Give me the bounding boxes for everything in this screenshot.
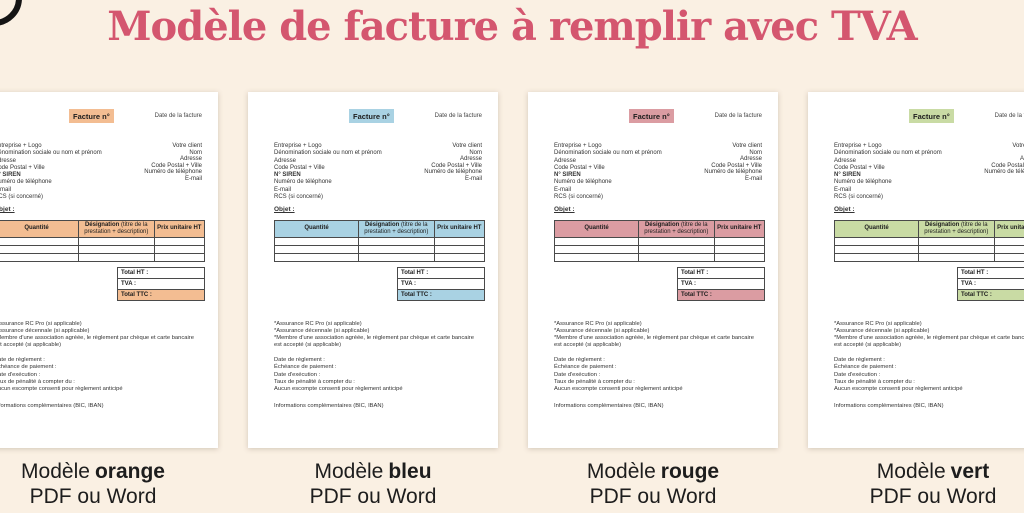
total-ttc-row: Total TTC : (117, 289, 205, 301)
totals-block: Total HT : TVA : Total TTC : (397, 268, 485, 301)
footnote-line: *Assurance décennale (si applicable) (834, 328, 1024, 335)
items-table-header-designation: Désignation (titre de la prestation + de… (79, 221, 155, 238)
complementary-info-line: Informations complémentaires (BIC, IBAN) (0, 403, 104, 409)
table-cell-empty (639, 237, 715, 245)
invoice-template-card[interactable]: Facture n° Date de la facture Entreprise… (248, 92, 498, 448)
sender-line: N° SIREN (834, 172, 942, 179)
model-caption-prefix: Modèle (877, 459, 946, 484)
items-table-empty-row (0, 237, 205, 245)
table-cell-empty (639, 245, 715, 253)
object-label: Objet : (274, 206, 295, 213)
payment-terms-block: Date de règlement : Échéance de paiement… (554, 357, 754, 393)
table-cell-empty (835, 253, 919, 261)
table-cell-empty (154, 245, 204, 253)
model-caption[interactable]: Modèle orange PDF ou Word (0, 459, 218, 509)
footnotes-block: *Assurance RC Pro (si applicable) *Assur… (274, 321, 474, 349)
invoice-date-label: Date de la facture (155, 113, 202, 119)
table-cell-empty (275, 237, 359, 245)
items-table-empty-row (555, 245, 765, 253)
sender-line: Code Postal + Ville (554, 165, 662, 172)
sender-line: Dénomination sociale ou nom et prénom (834, 150, 942, 157)
payment-line: Date d'exécution : (554, 372, 754, 379)
footnote-line: *Membre d'une association agréée, le règ… (274, 335, 474, 349)
invoice-date-label: Date de la facture (435, 113, 482, 119)
totals-block: Total HT : TVA : Total TTC : (677, 268, 765, 301)
model-caption-prefix: Modèle (21, 459, 90, 484)
items-table: Quantité Désignation (titre de la presta… (274, 220, 485, 262)
table-cell-empty (994, 237, 1024, 245)
payment-line: Échéance de paiement : (834, 364, 1024, 371)
items-table-header-designation: Désignation (titre de la prestation + de… (359, 221, 435, 238)
model-caption[interactable]: Modèle rouge PDF ou Word (528, 459, 778, 509)
page-title: Modèle de facture à remplir avec TVA (0, 2, 1024, 52)
footnote-line: *Assurance RC Pro (si applicable) (0, 321, 194, 328)
footnote-line: *Assurance RC Pro (si applicable) (554, 321, 754, 328)
payment-line: Aucun escompte consenti pour règlement a… (554, 386, 754, 393)
payment-line: Aucun escompte consenti pour règlement a… (0, 386, 194, 393)
sender-line: E-mail (554, 187, 662, 194)
invoice-number-badge: Facture n° (629, 109, 674, 123)
complementary-info-line: Informations complémentaires (BIC, IBAN) (554, 403, 664, 409)
model-caption-format: PDF ou Word (808, 484, 1024, 509)
table-cell-empty (919, 245, 995, 253)
table-cell-empty (714, 253, 764, 261)
table-cell-empty (434, 245, 484, 253)
table-cell-empty (359, 237, 435, 245)
totals-block: Total HT : TVA : Total TTC : (957, 268, 1024, 301)
sender-line: Adresse (0, 158, 102, 165)
items-table-empty-row (0, 253, 205, 261)
sender-line: N° SIREN (554, 172, 662, 179)
items-table-header-unit-price: Prix unitaire HT (434, 221, 484, 238)
invoice-number-badge: Facture n° (69, 109, 114, 123)
sender-line: Adresse (274, 158, 382, 165)
invoice-template-card[interactable]: Facture n° Date de la facture Entreprise… (808, 92, 1024, 448)
sender-line: Code Postal + Ville (0, 165, 102, 172)
items-table-header-designation: Désignation (titre de la prestation + de… (639, 221, 715, 238)
payment-line: Taux de pénalité à compter du : (0, 379, 194, 386)
items-table-header-quantity: Quantité (835, 221, 919, 238)
sender-line: Numéro de téléphone (274, 179, 382, 186)
sender-line: E-mail (0, 187, 102, 194)
items-table-header-quantity: Quantité (0, 221, 79, 238)
table-cell-empty (154, 253, 204, 261)
client-line: Numéro de téléphone (424, 169, 482, 176)
total-ttc-row: Total TTC : (397, 289, 485, 301)
table-cell-empty (835, 245, 919, 253)
footnotes-block: *Assurance RC Pro (si applicable) *Assur… (834, 321, 1024, 349)
table-cell-empty (639, 253, 715, 261)
items-table-empty-row (555, 253, 765, 261)
payment-line: Taux de pénalité à compter du : (274, 379, 474, 386)
table-cell-empty (714, 237, 764, 245)
sender-block: Entreprise + Logo Dénomination sociale o… (0, 143, 102, 201)
payment-terms-block: Date de règlement : Échéance de paiement… (274, 357, 474, 393)
sender-line: Dénomination sociale ou nom et prénom (0, 150, 102, 157)
items-table: Quantité Désignation (titre de la presta… (554, 220, 765, 262)
sender-line: Adresse (834, 158, 942, 165)
client-line: E-mail (144, 176, 202, 183)
sender-line: Numéro de téléphone (554, 179, 662, 186)
sender-line: Adresse (554, 158, 662, 165)
items-table-header-quantity: Quantité (275, 221, 359, 238)
invoice-date-label: Date de la facture (995, 113, 1024, 119)
sender-line: Dénomination sociale ou nom et prénom (554, 150, 662, 157)
client-line: E-mail (984, 176, 1024, 183)
items-table-header-unit-price: Prix unitaire HT (994, 221, 1024, 238)
model-caption-name: Modèle bleu (248, 459, 498, 484)
items-table-empty-row (275, 237, 485, 245)
items-table-empty-row (835, 237, 1024, 245)
items-table-header-unit-price: Prix unitaire HT (714, 221, 764, 238)
items-table-empty-row (835, 245, 1024, 253)
sender-line: Entreprise + Logo (274, 143, 382, 150)
items-table: Quantité Désignation (titre de la presta… (834, 220, 1024, 262)
table-cell-empty (434, 253, 484, 261)
model-caption[interactable]: Modèle bleu PDF ou Word (248, 459, 498, 509)
table-cell-empty (359, 245, 435, 253)
total-ttc-row: Total TTC : (677, 289, 765, 301)
payment-terms-block: Date de règlement : Échéance de paiement… (0, 357, 194, 393)
invoice-template-card[interactable]: Facture n° Date de la facture Entreprise… (0, 92, 218, 448)
model-caption-format: PDF ou Word (248, 484, 498, 509)
model-caption-name: Modèle rouge (528, 459, 778, 484)
table-cell-empty (359, 253, 435, 261)
sender-line: RCS (si concerné) (0, 194, 102, 201)
client-line: Numéro de téléphone (704, 169, 762, 176)
sender-line: N° SIREN (0, 172, 102, 179)
footnote-line: *Membre d'une association agréée, le règ… (554, 335, 754, 349)
payment-line: Échéance de paiement : (0, 364, 194, 371)
table-cell-empty (555, 253, 639, 261)
table-cell-empty (835, 237, 919, 245)
items-table-empty-row (275, 253, 485, 261)
items-table-header-designation: Désignation (titre de la prestation + de… (919, 221, 995, 238)
client-line: E-mail (424, 176, 482, 183)
sender-line: Code Postal + Ville (834, 165, 942, 172)
totals-block: Total HT : TVA : Total TTC : (117, 268, 205, 301)
table-cell-empty (0, 253, 79, 261)
model-caption-color-word: orange (95, 459, 165, 484)
client-block: Votre client Nom Adresse Code Postal + V… (704, 143, 762, 182)
payment-line: Aucun escompte consenti pour règlement a… (834, 386, 1024, 393)
sender-line: RCS (si concerné) (834, 194, 942, 201)
payment-line: Taux de pénalité à compter du : (834, 379, 1024, 386)
payment-line: Taux de pénalité à compter du : (554, 379, 754, 386)
table-cell-empty (555, 237, 639, 245)
client-block: Votre client Nom Adresse Code Postal + V… (424, 143, 482, 182)
payment-line: Date d'exécution : (834, 372, 1024, 379)
sender-line: E-mail (274, 187, 382, 194)
total-ttc-row: Total TTC : (957, 289, 1024, 301)
table-cell-empty (919, 253, 995, 261)
model-caption-prefix: Modèle (314, 459, 383, 484)
invoice-number-badge: Facture n° (349, 109, 394, 123)
table-cell-empty (434, 237, 484, 245)
model-caption-color-word: vert (951, 459, 990, 484)
sender-line: RCS (si concerné) (554, 194, 662, 201)
table-cell-empty (994, 245, 1024, 253)
sender-block: Entreprise + Logo Dénomination sociale o… (834, 143, 942, 201)
table-cell-empty (0, 237, 79, 245)
table-cell-empty (275, 245, 359, 253)
model-caption[interactable]: Modèle vert PDF ou Word (808, 459, 1024, 509)
sender-line: N° SIREN (274, 172, 382, 179)
model-caption-prefix: Modèle (587, 459, 656, 484)
sender-line: Dénomination sociale ou nom et prénom (274, 150, 382, 157)
model-caption-format: PDF ou Word (0, 484, 218, 509)
complementary-info-line: Informations complémentaires (BIC, IBAN) (274, 403, 384, 409)
table-cell-empty (275, 253, 359, 261)
items-table-header-quantity: Quantité (555, 221, 639, 238)
payment-terms-block: Date de règlement : Échéance de paiement… (834, 357, 1024, 393)
items-table-header-unit-price: Prix unitaire HT (154, 221, 204, 238)
footnote-line: *Assurance décennale (si applicable) (0, 328, 194, 335)
items-table-empty-row (275, 245, 485, 253)
sender-line: Numéro de téléphone (834, 179, 942, 186)
footnote-line: *Assurance RC Pro (si applicable) (834, 321, 1024, 328)
sender-line: Entreprise + Logo (834, 143, 942, 150)
client-line: Numéro de téléphone (144, 169, 202, 176)
model-caption-format: PDF ou Word (528, 484, 778, 509)
table-cell-empty (154, 237, 204, 245)
payment-line: Date d'exécution : (0, 372, 194, 379)
object-label: Objet : (0, 206, 15, 213)
footnotes-block: *Assurance RC Pro (si applicable) *Assur… (554, 321, 754, 349)
sender-line: Entreprise + Logo (0, 143, 102, 150)
table-cell-empty (79, 245, 155, 253)
invoice-date-label: Date de la facture (715, 113, 762, 119)
payment-line: Échéance de paiement : (554, 364, 754, 371)
table-cell-empty (555, 245, 639, 253)
client-line: Numéro de téléphone (984, 169, 1024, 176)
model-caption-color-word: bleu (388, 459, 431, 484)
table-cell-empty (919, 237, 995, 245)
payment-line: Aucun escompte consenti pour règlement a… (274, 386, 474, 393)
sender-line: Code Postal + Ville (274, 165, 382, 172)
complementary-info-line: Informations complémentaires (BIC, IBAN) (834, 403, 944, 409)
model-caption-name: Modèle orange (0, 459, 218, 484)
sender-block: Entreprise + Logo Dénomination sociale o… (274, 143, 382, 201)
sender-line: Entreprise + Logo (554, 143, 662, 150)
sender-block: Entreprise + Logo Dénomination sociale o… (554, 143, 662, 201)
footnote-line: *Assurance RC Pro (si applicable) (274, 321, 474, 328)
footnote-line: *Membre d'une association agréée, le règ… (834, 335, 1024, 349)
footnotes-block: *Assurance RC Pro (si applicable) *Assur… (0, 321, 194, 349)
footnote-line: *Assurance décennale (si applicable) (274, 328, 474, 335)
items-table-empty-row (555, 237, 765, 245)
client-block: Votre client Nom Adresse Code Postal + V… (144, 143, 202, 182)
client-line: E-mail (704, 176, 762, 183)
model-caption-color-word: rouge (661, 459, 719, 484)
payment-line: Échéance de paiement : (274, 364, 474, 371)
object-label: Objet : (834, 206, 855, 213)
table-cell-empty (994, 253, 1024, 261)
invoice-template-card[interactable]: Facture n° Date de la facture Entreprise… (528, 92, 778, 448)
invoice-number-badge: Facture n° (909, 109, 954, 123)
table-cell-empty (79, 237, 155, 245)
items-table: Quantité Désignation (titre de la presta… (0, 220, 205, 262)
table-cell-empty (714, 245, 764, 253)
sender-line: RCS (si concerné) (274, 194, 382, 201)
items-table-empty-row (835, 253, 1024, 261)
items-table-empty-row (0, 245, 205, 253)
footnote-line: *Membre d'une association agréée, le règ… (0, 335, 194, 349)
table-cell-empty (79, 253, 155, 261)
table-cell-empty (0, 245, 79, 253)
client-block: Votre client Nom Adresse Code Postal + V… (984, 143, 1024, 182)
sender-line: Numéro de téléphone (0, 179, 102, 186)
footnote-line: *Assurance décennale (si applicable) (554, 328, 754, 335)
payment-line: Date d'exécution : (274, 372, 474, 379)
object-label: Objet : (554, 206, 575, 213)
sender-line: E-mail (834, 187, 942, 194)
model-caption-name: Modèle vert (808, 459, 1024, 484)
